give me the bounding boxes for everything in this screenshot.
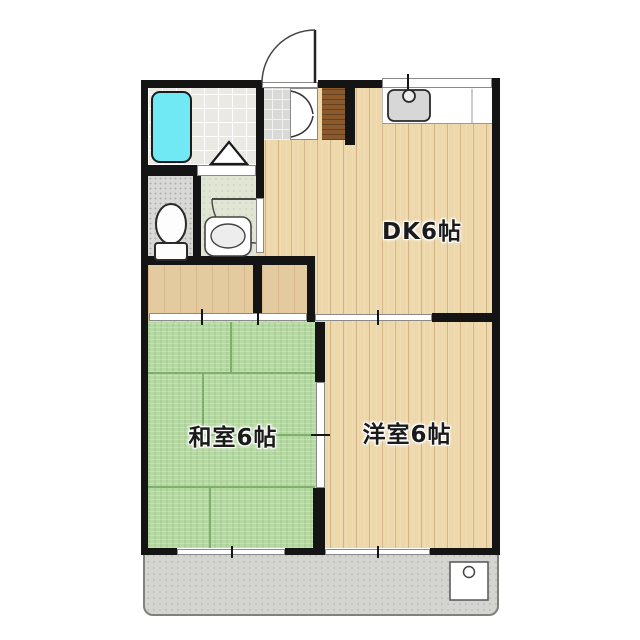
closet-sliding-doors xyxy=(149,313,307,321)
closet-left xyxy=(148,265,253,313)
japanese-room-label: 和室6帖 xyxy=(188,418,277,452)
wall-right xyxy=(492,78,500,555)
dk-western-door-tick xyxy=(377,310,379,325)
wall-genkan-stub xyxy=(345,88,355,145)
wall-mid-horizontal xyxy=(141,256,315,265)
window-washitsu-tick xyxy=(231,546,233,558)
closet-door-tick xyxy=(257,309,259,325)
wall-washitsu-right-top xyxy=(315,322,325,382)
kitchen-window-tick xyxy=(407,74,409,92)
washitsu-western-door-tick xyxy=(311,434,330,436)
wall-closet-divider xyxy=(253,265,262,313)
wall-bottom-c xyxy=(430,548,500,555)
kitchen-counter xyxy=(382,88,492,124)
wall-washitsu-right-bottom xyxy=(313,488,325,548)
bathroom-threshold xyxy=(197,165,256,176)
floor-plan: DK6帖 和室6帖 洋室6帖 xyxy=(0,0,640,640)
wall-bath-bottom xyxy=(141,165,197,176)
shoe-cabinet xyxy=(290,88,318,140)
tatami-mat-line xyxy=(230,322,232,374)
washroom-floor xyxy=(201,176,256,256)
kitchen-window xyxy=(382,78,492,88)
genkan-tile xyxy=(262,88,290,140)
bathtub xyxy=(151,91,192,163)
wall-bottom-b xyxy=(285,548,325,555)
entrance-threshold xyxy=(262,82,318,88)
dk-room-label: DK6帖 xyxy=(382,212,462,246)
wall-left xyxy=(141,80,148,555)
wall-toilet-right xyxy=(193,176,201,265)
wall-closet-right xyxy=(307,265,315,322)
wall-top-mid xyxy=(318,80,382,88)
western-room-label: 洋室6帖 xyxy=(362,415,451,449)
tatami-mat-line xyxy=(148,372,317,374)
tatami-mat-line xyxy=(148,486,315,488)
genkan-step xyxy=(322,88,345,140)
entrance-door-swing-arc xyxy=(262,30,315,83)
tatami-mat-line xyxy=(209,486,211,548)
wall-top-left xyxy=(141,80,262,88)
wall-bath-right xyxy=(256,88,264,198)
wall-dk-western xyxy=(432,313,492,322)
closet-door-tick xyxy=(201,309,203,325)
window-western-tick xyxy=(377,546,379,558)
dk-western-sliding-door xyxy=(315,314,432,321)
closet-right xyxy=(262,265,307,313)
toilet-floor xyxy=(148,176,193,256)
washroom-door-leaf xyxy=(256,198,264,253)
wall-bottom-a xyxy=(141,548,177,555)
balcony xyxy=(143,551,499,616)
